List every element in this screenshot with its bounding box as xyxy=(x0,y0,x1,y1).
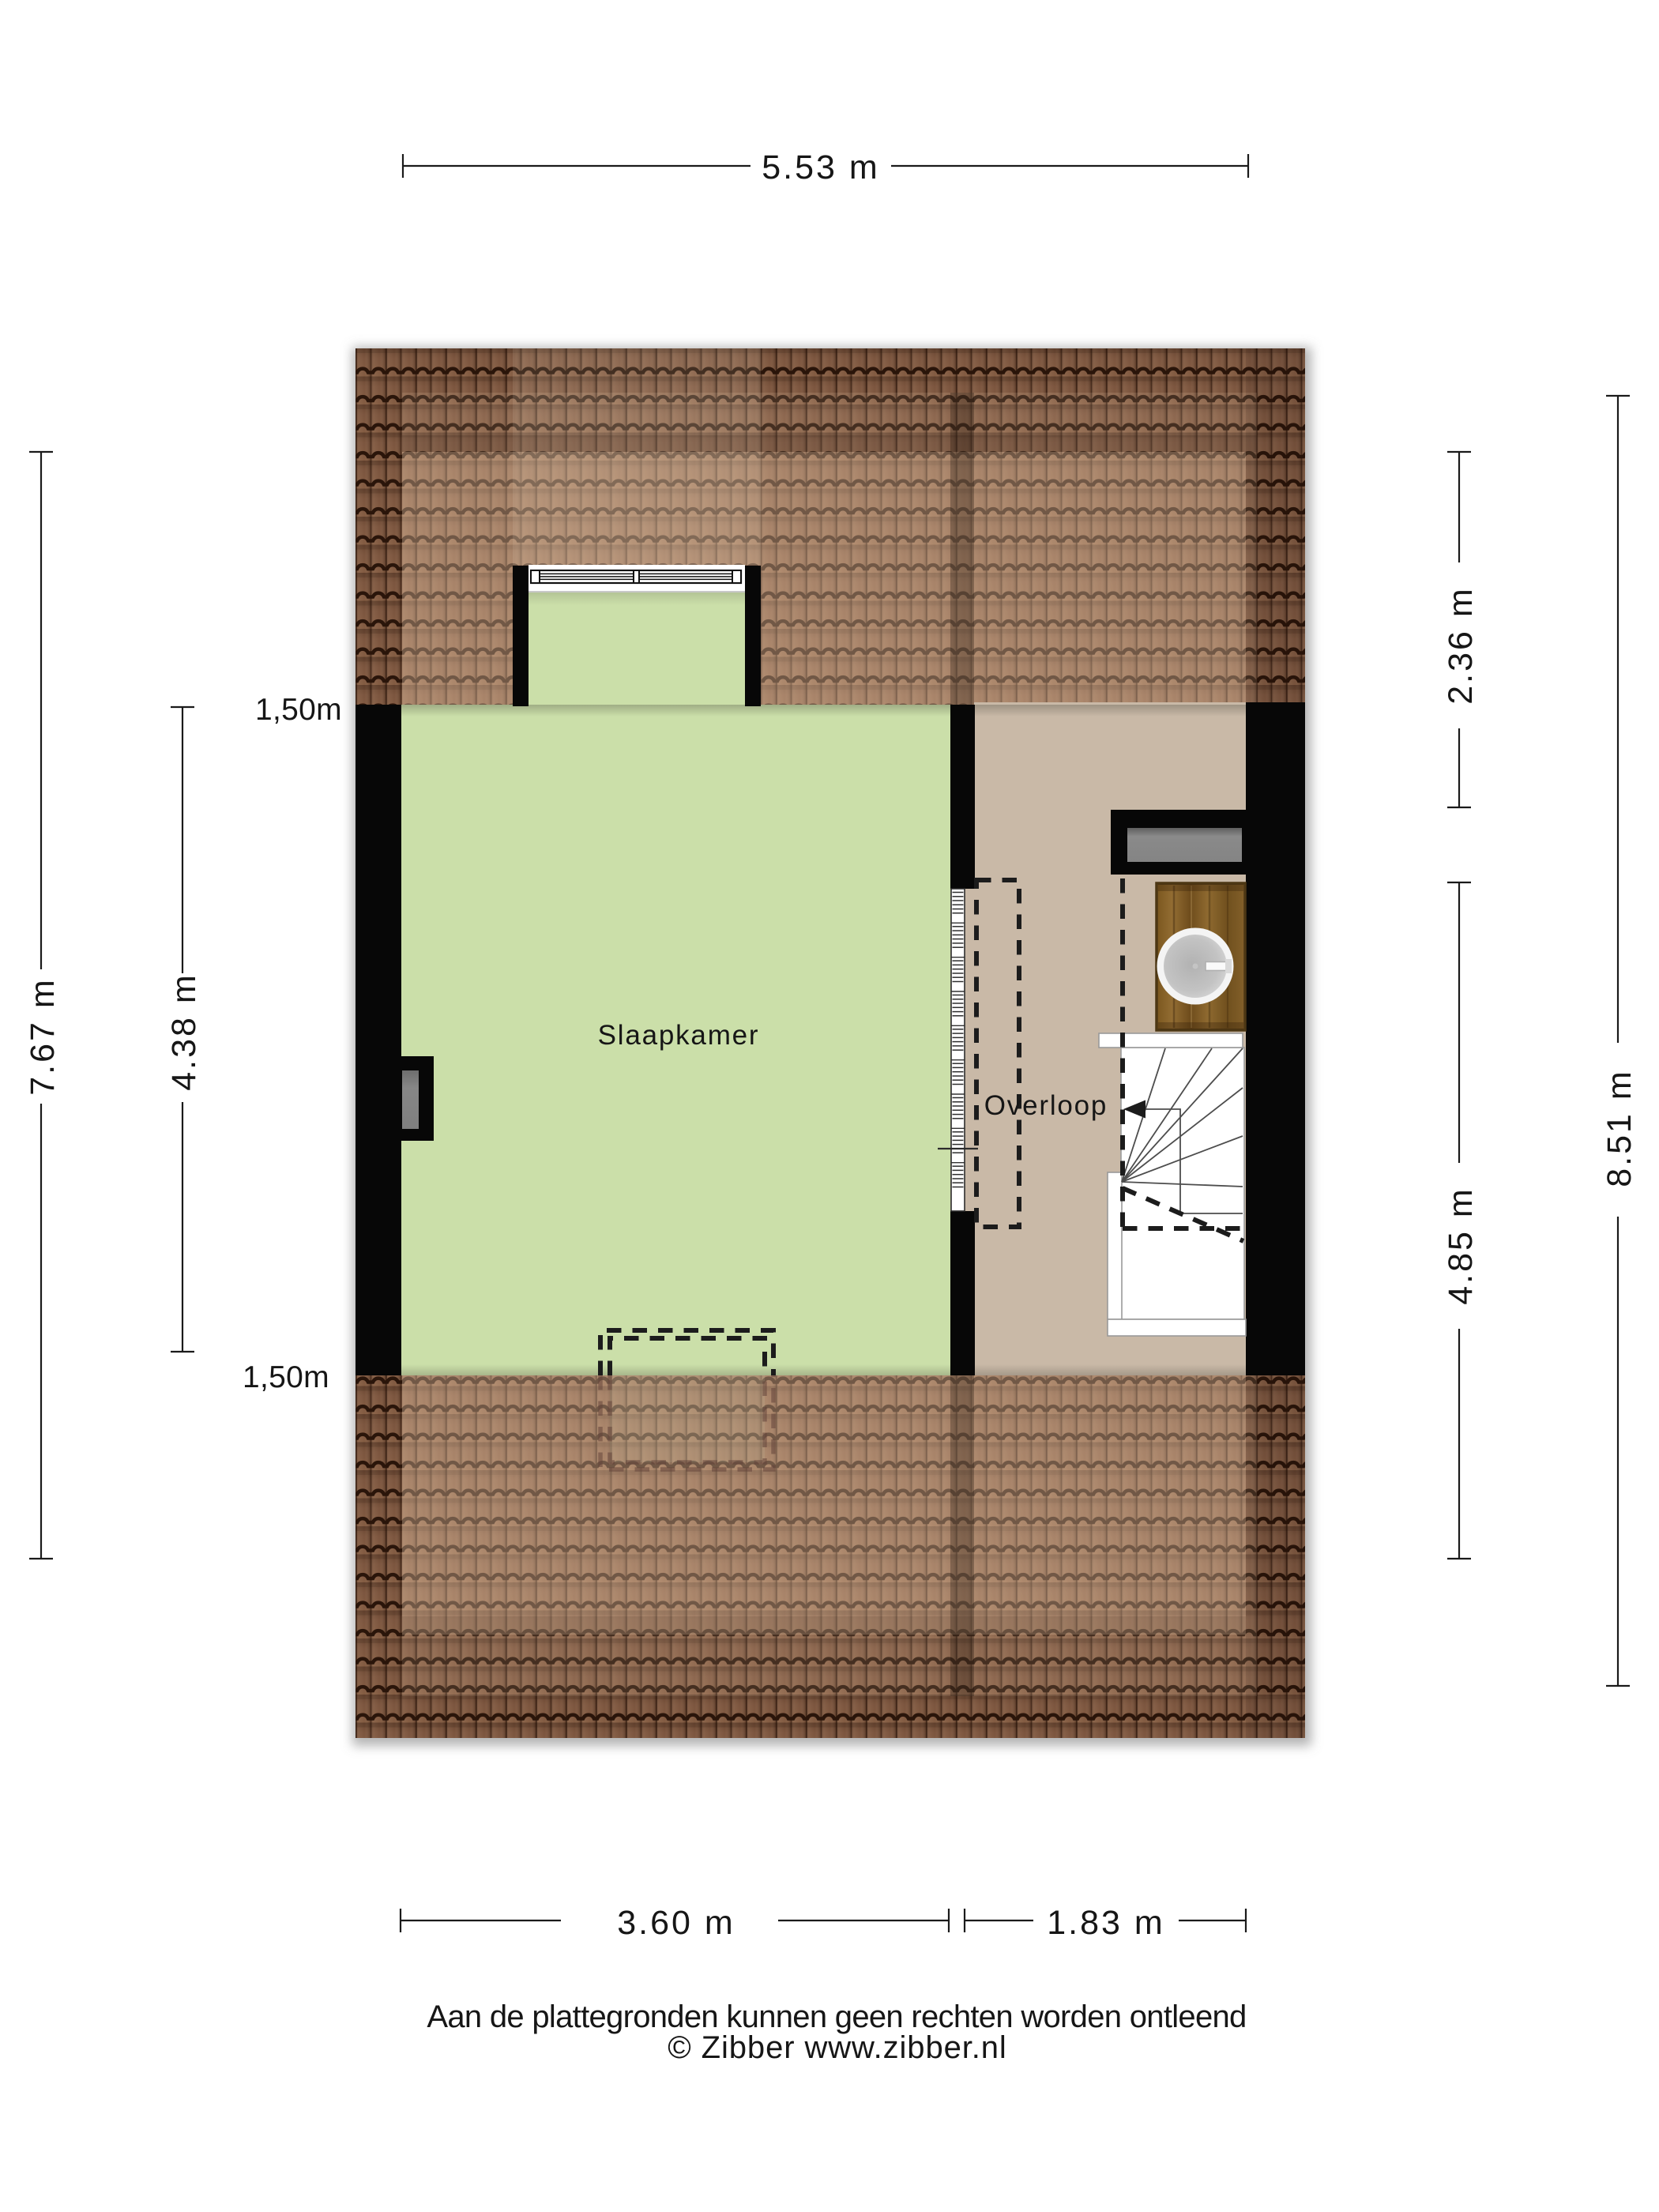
svg-text:7.67 m: 7.67 m xyxy=(24,977,62,1095)
svg-text:4.85 m: 4.85 m xyxy=(1442,1187,1480,1304)
svg-text:5.53 m: 5.53 m xyxy=(762,149,879,186)
svg-text:Slaapkamer: Slaapkamer xyxy=(598,1020,760,1051)
svg-text:8.51 m: 8.51 m xyxy=(1601,1069,1638,1187)
svg-text:1,50m: 1,50m xyxy=(243,1360,329,1394)
svg-text:© Zibber www.zibber.nl: © Zibber www.zibber.nl xyxy=(668,2030,1006,2065)
svg-text:Overloop: Overloop xyxy=(984,1090,1108,1121)
svg-text:4.38 m: 4.38 m xyxy=(165,972,203,1090)
svg-text:1,50m: 1,50m xyxy=(255,693,342,727)
svg-text:1.83 m: 1.83 m xyxy=(1047,1904,1164,1942)
svg-text:Aan de plattegronden kunnen ge: Aan de plattegronden kunnen geen rechten… xyxy=(427,1999,1246,2034)
svg-text:2.36 m: 2.36 m xyxy=(1442,586,1480,704)
svg-text:3.60 m: 3.60 m xyxy=(617,1904,735,1942)
